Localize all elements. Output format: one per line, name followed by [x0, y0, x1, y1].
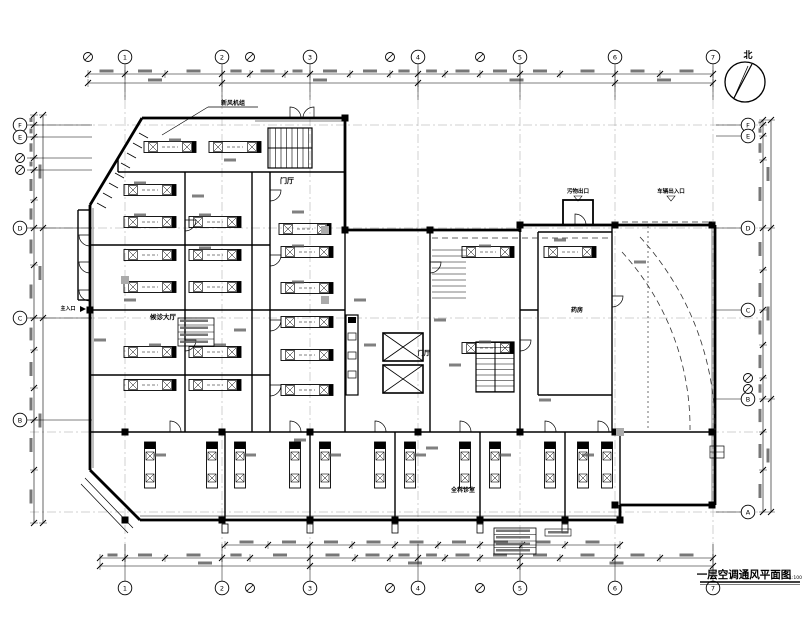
door-arc [79, 235, 90, 246]
dim-text [759, 187, 762, 201]
grid-bubble-bottom: 4 [411, 581, 425, 595]
fan-coil-units [124, 142, 613, 489]
grid-bubble-right: E [741, 129, 755, 143]
tiny-text [134, 214, 146, 217]
column [392, 517, 399, 524]
grid-bubble-bottom-sub [476, 584, 485, 593]
grid-bubble-top: 3 [303, 50, 317, 64]
grid-bubble-top: 6 [608, 50, 622, 64]
dim-text [426, 554, 437, 557]
room-label-waiting-hall: 候诊大厅 [150, 312, 177, 321]
tiny-text [224, 159, 236, 162]
door-arc [290, 421, 301, 432]
tiny-text [329, 454, 341, 457]
fan-coil-unit [281, 350, 333, 361]
svg-text:C: C [18, 314, 23, 322]
fan-coil-unit [281, 385, 333, 396]
grid-bubble-top-sub [476, 53, 485, 62]
grid-bubble-bottom: 3 [303, 581, 317, 595]
outer-wall [90, 470, 140, 520]
grid-bubble-bottom: 7 [706, 581, 720, 595]
column [87, 307, 94, 314]
tiny-text [554, 239, 566, 242]
door-arc [270, 255, 281, 266]
dim-text [30, 362, 33, 376]
porch-column [477, 524, 483, 533]
callout-ahu: 新风机组 [221, 99, 245, 107]
north-label: 北 [743, 49, 752, 61]
fan-coil-unit [189, 250, 241, 261]
dim-text [30, 129, 33, 134]
hatch-line [115, 173, 124, 178]
dim-text [30, 118, 33, 122]
svg-text:A: A [746, 508, 751, 516]
column [617, 517, 624, 524]
fan-coil-unit [207, 442, 218, 488]
fan-coil-unit [490, 442, 501, 488]
column [612, 222, 619, 229]
fan-coil-unit [124, 282, 176, 293]
dim-text [39, 266, 42, 280]
dim-text [456, 554, 470, 557]
grid-bubble-bottom: 1 [118, 581, 132, 595]
svg-text:7: 7 [711, 53, 715, 61]
door-arc [290, 107, 301, 118]
grid-bubble-left-sub [16, 166, 25, 175]
dim-text [39, 165, 42, 179]
svg-text:3: 3 [308, 584, 312, 592]
hatch-line [133, 143, 142, 148]
porch-column [222, 524, 228, 533]
fan-coil-unit [578, 442, 589, 488]
room-label-lobby-north: 门厅 [280, 176, 294, 185]
annotation-callouts: 新风机组 污物出口 车辆出入口 主入口 [60, 99, 684, 312]
dim-text [293, 70, 303, 73]
column [562, 517, 569, 524]
tiny-text [499, 454, 511, 457]
dim-text [759, 355, 762, 368]
dim-text [230, 554, 241, 557]
fan-coil-unit [602, 442, 613, 488]
tiny-text [292, 281, 304, 284]
door-arc [270, 385, 281, 396]
grid-bubble-top-sub [246, 53, 255, 62]
tiny-text [414, 454, 426, 457]
dim-text [456, 70, 470, 73]
dim-text [367, 541, 381, 544]
tiny-text [134, 182, 146, 185]
svg-text:F: F [18, 121, 22, 129]
dim-text [657, 79, 671, 82]
fan-coil-unit [320, 442, 331, 488]
dim-text [426, 70, 437, 73]
dim-text [138, 554, 152, 557]
dim-text [759, 143, 762, 153]
column [709, 429, 716, 436]
tiny-text [364, 344, 376, 347]
dim-text [631, 70, 645, 73]
dim-text [30, 398, 33, 411]
tiny-text [449, 364, 461, 367]
hatch-line [109, 183, 118, 188]
svg-text:2: 2 [220, 53, 224, 61]
grid-bubble-right: C [741, 303, 755, 317]
grid-bubble-right-sub [744, 385, 753, 394]
svg-text:5: 5 [518, 53, 522, 61]
axis-centerlines [30, 66, 762, 562]
room-label-pharmacy: 药房 [571, 306, 583, 314]
floorplan-canvas: 12345671234567FEDCBFEDCBA 北 门厅 门厅 候诊大厅 全… [0, 0, 809, 629]
column [219, 517, 226, 524]
grid-bubble-top: 4 [411, 50, 425, 64]
tiny-text [292, 211, 304, 214]
tiny-text [539, 399, 551, 402]
svg-text:D: D [17, 224, 22, 232]
dim-text [30, 285, 33, 299]
dim-text [187, 554, 201, 557]
column [517, 429, 524, 436]
svg-text:3: 3 [308, 53, 312, 61]
tiny-text [294, 439, 306, 442]
door-arc [430, 262, 441, 273]
tiny-text [354, 299, 366, 302]
stairs [268, 128, 514, 392]
canopy-arc [640, 237, 715, 430]
column-gray [321, 296, 329, 304]
fan-coil-unit [124, 250, 176, 261]
svg-text:B: B [746, 395, 750, 403]
fan-coil-unit [375, 442, 386, 488]
canopy-arc [622, 252, 690, 430]
tiny-text [214, 344, 226, 347]
fan-coil-unit [290, 442, 301, 488]
north-arrow: 北 [725, 49, 765, 102]
grid-bubble-left-sub [16, 154, 25, 163]
dim-text [759, 321, 762, 335]
fan-coil-unit [544, 247, 596, 258]
column [307, 517, 314, 524]
dim-text [533, 70, 547, 73]
grid-bubble-right: B [741, 392, 755, 406]
callout-vehicle-entry: 车辆出入口 [657, 187, 685, 195]
dim-text [398, 70, 409, 73]
fan-coil-unit [189, 217, 241, 228]
dim-text [452, 541, 466, 544]
porch-column [392, 524, 398, 533]
fan-coil-unit [460, 442, 471, 488]
dim-text [759, 444, 762, 458]
dim-text [138, 70, 152, 73]
dim-text [610, 562, 624, 565]
grid-bubble-bottom: 6 [608, 581, 622, 595]
tiny-text [124, 299, 136, 302]
dim-text [398, 554, 409, 557]
door-arc [520, 340, 531, 351]
grid-bubble-left: D [13, 221, 27, 235]
door-arc [612, 296, 623, 307]
fan-coil-unit [209, 142, 261, 153]
column [517, 222, 524, 229]
dim-text [767, 167, 770, 181]
callout-waste-exit: 污物出口 [567, 187, 589, 195]
dim-text [240, 541, 254, 544]
drawing-scale: 1:100 [789, 575, 802, 581]
fan-coil-unit [144, 142, 196, 153]
svg-text:4: 4 [416, 53, 420, 61]
grid-bubble-left: B [13, 413, 27, 427]
grid-bubble-top-sub [386, 53, 395, 62]
hatch-line [121, 163, 130, 168]
dim-text [767, 307, 770, 321]
tiny-text [292, 245, 304, 248]
svg-text:1: 1 [123, 53, 127, 61]
fan-coil-unit [545, 442, 556, 488]
dim-text [282, 541, 296, 544]
svg-text:6: 6 [613, 53, 617, 61]
dim-text [408, 562, 422, 565]
dim-text [680, 554, 694, 557]
svg-text:1: 1 [123, 584, 127, 592]
column-gray [616, 428, 624, 436]
column [427, 227, 434, 234]
dim-text [30, 208, 33, 219]
column-gray [121, 276, 129, 284]
grid-bubble-top: 1 [118, 50, 132, 64]
grid-bubble-top: 7 [706, 50, 720, 64]
column [219, 429, 226, 436]
tiny-text [426, 447, 438, 450]
fan-coil-unit [145, 442, 156, 488]
grid-bubbles: 12345671234567FEDCBFEDCBA [13, 50, 755, 595]
dim-text [680, 70, 694, 73]
tiny-text [479, 245, 491, 248]
dim-text [187, 70, 201, 73]
svg-text:7: 7 [711, 584, 715, 592]
column [122, 429, 129, 436]
dashed-canopy-arcs [432, 222, 715, 430]
fan-coil-unit [124, 185, 176, 196]
callout-main-entry: 主入口 [60, 305, 75, 312]
grid-bubble-top: 5 [513, 50, 527, 64]
tiny-text [582, 454, 594, 457]
dim-text [510, 79, 524, 82]
door-arcs [79, 107, 623, 432]
dim-text [30, 162, 33, 167]
dim-text [323, 70, 337, 73]
fan-coil-unit [124, 380, 176, 391]
grid-bubble-left: E [13, 130, 27, 144]
dim-text [767, 449, 770, 463]
dim-text [493, 70, 507, 73]
dim-text [759, 283, 762, 297]
column [709, 222, 716, 229]
door-arc [270, 320, 281, 331]
svg-text:6: 6 [613, 584, 617, 592]
dim-text [581, 70, 595, 73]
tiny-text [94, 339, 106, 342]
outer-wall [90, 118, 142, 205]
tiny-text [479, 341, 491, 344]
hatch-line [97, 203, 106, 208]
hatch-line [127, 153, 136, 158]
fan-coil-unit [462, 343, 514, 354]
elevator-core [346, 315, 423, 395]
dim-text [30, 179, 33, 191]
tiny-text [244, 454, 256, 457]
dim-text [759, 128, 762, 132]
dim-text [366, 554, 380, 557]
svg-text:5: 5 [518, 584, 522, 592]
grid-bubble-right-sub [744, 374, 753, 383]
tiny-text [434, 319, 446, 322]
door-arc [79, 262, 90, 273]
svg-text:2: 2 [220, 584, 224, 592]
svg-text:E: E [18, 133, 22, 141]
grid-bubble-right: A [741, 505, 755, 519]
tiny-annotation-text [94, 139, 646, 457]
grid-bubble-left: C [13, 311, 27, 325]
fan-coil-unit [281, 247, 333, 258]
hatch-line [139, 133, 148, 138]
dim-text [759, 484, 762, 498]
dim-text [759, 242, 762, 256]
svg-text:E: E [746, 132, 750, 140]
column [122, 517, 129, 524]
dim-text [326, 554, 340, 557]
tiny-text [192, 195, 204, 198]
dim-text [273, 554, 287, 557]
dim-text [30, 143, 33, 151]
svg-text:D: D [745, 224, 750, 232]
svg-text:F: F [746, 121, 750, 129]
dim-text [410, 541, 424, 544]
door-arc [375, 421, 386, 432]
dim-text [363, 70, 377, 73]
column [709, 502, 716, 509]
column [415, 429, 422, 436]
dim-text [108, 554, 118, 557]
dim-text [30, 438, 33, 452]
dim-text [324, 541, 338, 544]
grid-bubble-top: 2 [215, 50, 229, 64]
dim-text [30, 490, 33, 504]
dim-text [759, 409, 762, 422]
dim-text [30, 328, 33, 341]
cad-floorplan-page: 12345671234567FEDCBFEDCBA 北 门厅 门厅 候诊大厅 全… [0, 0, 809, 629]
column [342, 227, 349, 234]
grid-bubble-bottom: 5 [513, 581, 527, 595]
door-arc [170, 421, 181, 432]
title-block: 一层空调通风平面图 1:100 [697, 568, 802, 585]
column [477, 517, 484, 524]
grid-bubble-right: D [741, 221, 755, 235]
dim-text [759, 122, 762, 124]
fan-coil-unit [281, 283, 333, 294]
fan-coil-unit [189, 380, 241, 391]
structural-columns [87, 115, 716, 534]
svg-text:4: 4 [416, 584, 420, 592]
door-arc [545, 421, 556, 432]
dim-text [230, 70, 241, 73]
tiny-text [234, 329, 246, 332]
door-arc [460, 421, 471, 432]
dim-text [586, 541, 600, 544]
grid-bubble-bottom-sub [246, 584, 255, 593]
dim-text [581, 554, 595, 557]
fan-coil-unit [405, 442, 416, 488]
fan-coil-unit [124, 217, 176, 228]
dim-text [148, 79, 162, 82]
dim-text [198, 562, 212, 565]
tiny-text [199, 214, 211, 217]
door-arc [598, 421, 609, 432]
svg-text:C: C [746, 306, 751, 314]
grid-bubble-bottom-sub [386, 584, 395, 593]
hatch-line [103, 193, 112, 198]
column-gray [321, 226, 329, 234]
fan-coil-unit [189, 347, 241, 358]
dim-text [261, 70, 275, 73]
tiny-text [149, 344, 161, 347]
tiny-text [169, 139, 181, 142]
dimension-lines [30, 70, 776, 571]
dim-text [631, 554, 645, 557]
column [612, 502, 619, 509]
column [307, 429, 314, 436]
fan-coil-unit [235, 442, 246, 488]
dim-text [537, 541, 551, 544]
tiny-text [199, 247, 211, 250]
grid-bubble-bottom: 2 [215, 581, 229, 595]
fan-coil-unit [189, 282, 241, 293]
room-label-clinic: 全科诊室 [450, 486, 475, 494]
tiny-text [634, 261, 646, 264]
door-arc [270, 190, 281, 201]
room-label-lobby-core: 门厅 [418, 348, 432, 357]
fan-coil-unit [124, 347, 176, 358]
dim-text [313, 79, 327, 82]
grid-bubble-top-sub [84, 53, 93, 62]
dim-text [759, 384, 762, 392]
dim-text [100, 70, 114, 73]
dim-text [30, 240, 33, 254]
tiny-text [154, 454, 166, 457]
fan-coil-unit [462, 247, 514, 258]
waste-room [563, 200, 593, 225]
column [342, 115, 349, 122]
dim-text [39, 414, 42, 428]
door-arc [303, 107, 314, 118]
door-arc [575, 214, 586, 225]
drawing-title: 一层空调通风平面图 [697, 568, 792, 581]
svg-text:B: B [18, 416, 22, 424]
